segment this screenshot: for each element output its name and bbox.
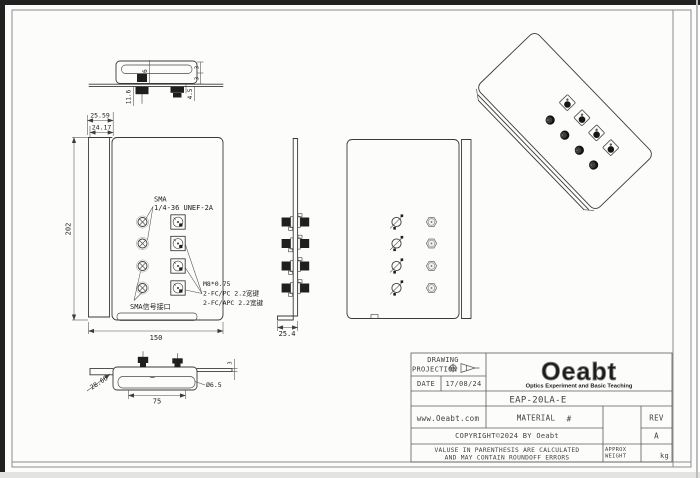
dim-3-bottom: 3: [195, 77, 201, 80]
weight-label: WEIGHT: [605, 454, 627, 460]
material-label: MATERIAL: [517, 414, 556, 423]
label-fc-thread: M8*0.75: [203, 280, 230, 288]
label-fc-apc: 2-FC/APC 2.2宽键: [203, 298, 263, 307]
dim-150: 150: [150, 334, 163, 342]
rev-value: A: [654, 432, 659, 441]
copyright: COPYRIGHT©2024 BY Oeabt: [455, 432, 559, 440]
dim-4-5: 4.5: [187, 88, 194, 99]
website: www.Oeabt.com: [417, 414, 480, 423]
date-label: DATE: [417, 380, 435, 388]
scan-edge-left: [0, 0, 5, 478]
dim-202: 202: [65, 223, 73, 236]
dim-3-plate: 3: [228, 361, 234, 364]
scan-edge-top: [0, 0, 700, 5]
sheet-paper: [3, 3, 697, 474]
date-value: 17/08/24: [445, 380, 481, 388]
oeabt-logo: Oeabt: [541, 358, 617, 386]
weight-unit: kg: [660, 452, 669, 460]
label-fc-pc: 2-FC/PC 2.2宽键: [203, 289, 260, 298]
dim-24-17: 24.17: [92, 124, 112, 132]
dim-11-6: 11.6: [126, 89, 133, 104]
label-sma-thread: 1/4-36 UNEF-2A: [154, 204, 214, 212]
dim-75: 75: [153, 398, 161, 406]
disclaimer-line1: VALUSE IN PARENTHESIS ARE CALCULATED: [435, 447, 580, 454]
label-sma-port: SMA信号接口: [130, 302, 171, 311]
drawing-label: DRAWING: [427, 356, 459, 364]
drawing-sheet: 11.6 6 5 4.5 3 3: [0, 0, 700, 478]
cad-drawing: 11.6 6 5 4.5 3 3: [0, 0, 700, 478]
scan-edge-bottom: [0, 472, 700, 478]
oeabt-logo-subtitle: Optics Experiment and Basic Teaching: [526, 384, 633, 390]
rev-label: REV: [649, 414, 664, 423]
material-value: #: [567, 415, 572, 424]
part-number: EAP-20LA-E: [509, 396, 566, 406]
approx-label: APPROX: [605, 447, 627, 453]
disclaimer-line2: AND MAY CONTAIN ROUNDOFF ERRORS: [445, 455, 570, 462]
dim-25-59: 25.59: [90, 112, 110, 120]
dim-25-4: 25.4: [279, 330, 296, 338]
dim-5: 5: [179, 87, 186, 91]
dim-6: 6: [142, 69, 149, 73]
label-sma: SMA: [154, 196, 167, 204]
dim-3-top: 3: [195, 66, 201, 69]
dim-slot-dia: Ø6.5: [206, 381, 222, 389]
